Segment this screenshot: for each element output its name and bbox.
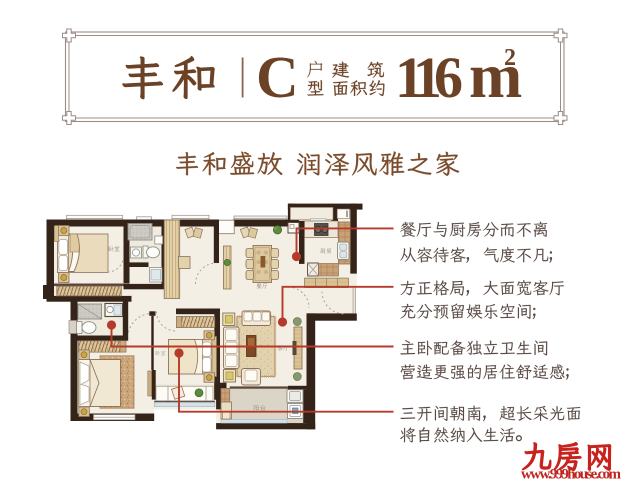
svg-text:www.999house.com: www.999house.com	[521, 467, 622, 483]
svg-text:116: 116	[395, 45, 463, 110]
svg-text:C: C	[256, 44, 299, 110]
svg-text:2: 2	[504, 45, 516, 71]
